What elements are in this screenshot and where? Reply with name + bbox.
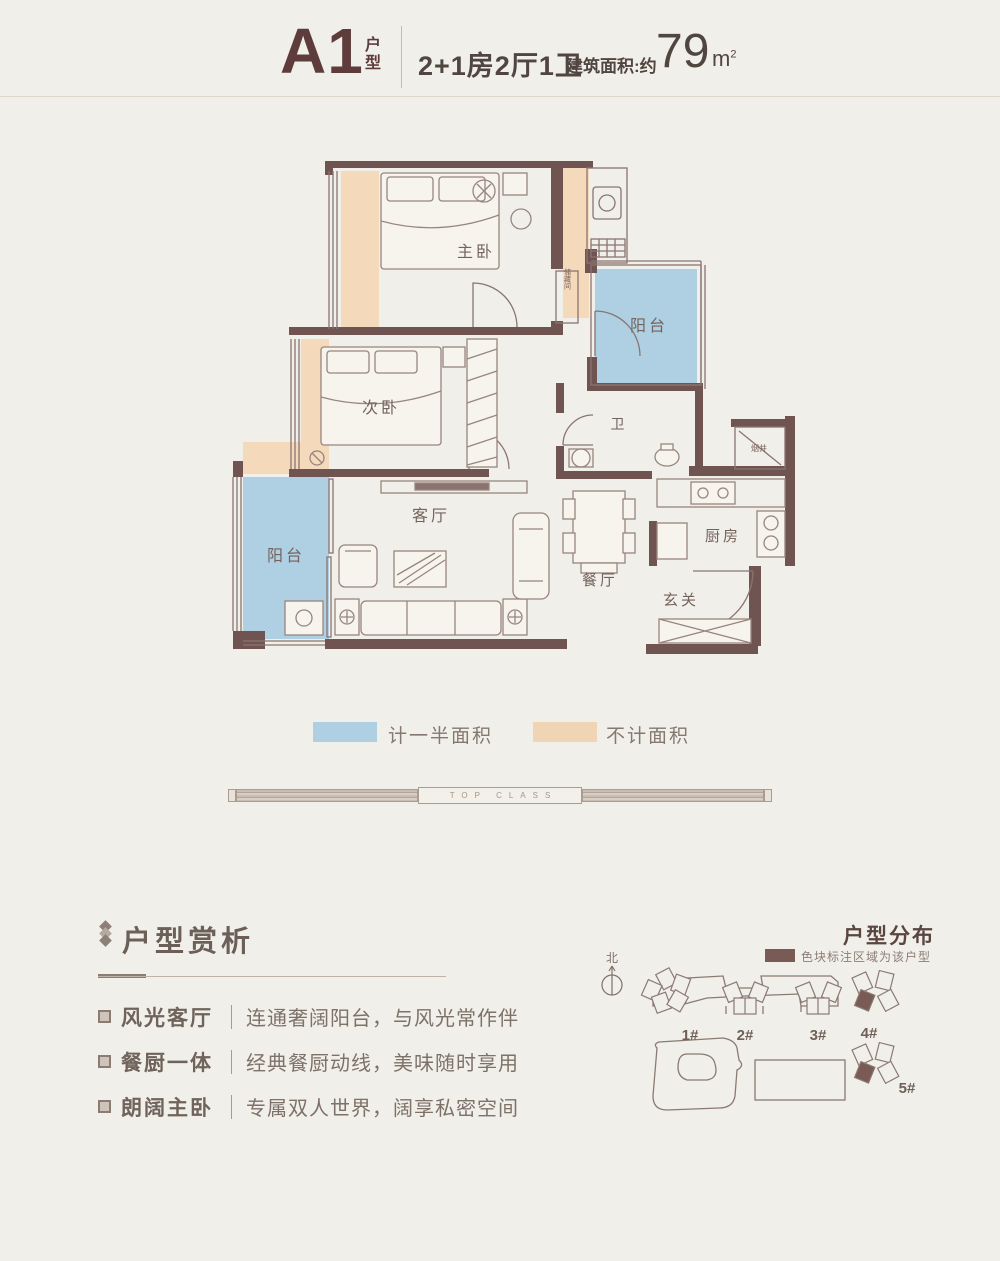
- analysis-rule: [98, 974, 558, 980]
- analysis-separator: [231, 1050, 232, 1074]
- legend-label-half-area: 计一半面积: [388, 721, 493, 748]
- analysis-item: 餐厨一体 经典餐厨动线，美味随时享用: [98, 1039, 558, 1084]
- square-bullet-icon: [98, 1010, 111, 1023]
- label-balcony-upper: 阳台: [630, 317, 668, 335]
- label-foyer: 玄关: [663, 592, 699, 609]
- highlight-unit-4: [855, 990, 875, 1011]
- area-value: 79: [656, 24, 709, 79]
- building-label-1: 1#: [682, 1027, 699, 1044]
- divider-ridged-segment: [236, 789, 418, 802]
- analysis-term: 风光客厅: [121, 1002, 225, 1032]
- analysis-header: 户型赏析: [98, 918, 558, 968]
- legend-label-excluded: 不计面积: [606, 721, 690, 748]
- building-label-5: 5#: [899, 1080, 916, 1097]
- label-master-bedroom: 主卧: [457, 243, 495, 261]
- building-label-2: 2#: [737, 1027, 754, 1044]
- highlight-unit-5: [855, 1062, 875, 1083]
- label-bathroom: 卫: [611, 416, 628, 432]
- unit-code: A1: [280, 14, 364, 88]
- label-kitchen: 厨房: [705, 528, 741, 545]
- square-bullet-icon: [98, 1055, 111, 1068]
- unit-code-suffix: 户型: [362, 36, 380, 72]
- header: A1 户型 2+1房2厅1卫 建筑面积:约 79 m2: [0, 0, 1000, 96]
- analysis-term: 朗阔主卧: [121, 1092, 225, 1122]
- layout-spec: 2+1房2厅1卫: [418, 44, 583, 83]
- area-label: 建筑面积:约: [566, 52, 657, 77]
- label-flue: 烟井: [751, 443, 767, 453]
- divider-center-box: TOP CLASS: [418, 787, 582, 804]
- building-label-4: 4#: [861, 1025, 878, 1042]
- decorative-divider: TOP CLASS: [228, 787, 772, 804]
- analysis-items: 风光客厅 连通奢阔阳台，与风光常作伴 餐厨一体 经典餐厨动线，美味随时享用 朗阔…: [98, 994, 558, 1129]
- header-divider: [401, 26, 402, 88]
- floorplan-drawing: 主卧 次卧 阳台 卫 阳台 客厅 餐厅 厨房 玄关 储藏间 烟井: [229, 161, 799, 666]
- header-rule: [0, 96, 1000, 97]
- diamond-ribbon-icon: [98, 922, 112, 943]
- legend-swatch-half-area: [313, 722, 377, 742]
- analysis-separator: [231, 1005, 232, 1029]
- divider-text: TOP CLASS: [443, 791, 558, 800]
- flyer-page: { "header": { "unit_code": "A1", "unit_c…: [0, 0, 1000, 1261]
- analysis-desc: 连通奢阔阳台，与风光常作伴: [246, 1002, 519, 1031]
- building-label-3: 3#: [810, 1027, 827, 1044]
- label-balcony-lower: 阳台: [267, 547, 305, 565]
- area-unit-exponent: 2: [730, 49, 736, 61]
- north-indicator: 北: [602, 951, 622, 995]
- analysis-item: 风光客厅 连通奢阔阳台，与风光常作伴: [98, 994, 558, 1039]
- label-storage: 储藏间: [564, 268, 572, 291]
- divider-end-cap: [228, 789, 236, 802]
- area-unit-base: m: [712, 46, 730, 71]
- divider-ridged-segment: [582, 789, 764, 802]
- plan-legend: 计一半面积 不计面积: [0, 718, 1000, 748]
- label-living-room: 客厅: [412, 507, 450, 525]
- square-bullet-icon: [98, 1100, 111, 1113]
- analysis-desc: 经典餐厨动线，美味随时享用: [246, 1047, 519, 1076]
- site-shapes: [653, 1038, 845, 1110]
- site-plan: 北: [595, 948, 950, 1120]
- north-label: 北: [606, 951, 618, 965]
- analysis-title: 户型赏析: [122, 918, 254, 960]
- label-second-bedroom: 次卧: [362, 399, 400, 417]
- area-unit: m2: [712, 46, 736, 72]
- divider-end-cap: [764, 789, 772, 802]
- analysis-desc: 专属双人世界，阔享私密空间: [246, 1092, 519, 1121]
- analysis-term: 餐厨一体: [121, 1047, 225, 1077]
- legend-swatch-excluded: [533, 722, 597, 742]
- distribution-title: 户型分布: [843, 920, 935, 950]
- analysis-section: 户型赏析 风光客厅 连通奢阔阳台，与风光常作伴 餐厨一体 经典餐厨动线，美味随时…: [98, 918, 558, 1129]
- analysis-separator: [231, 1095, 232, 1119]
- analysis-item: 朗阔主卧 专属双人世界，阔享私密空间: [98, 1084, 558, 1129]
- label-dining-room: 餐厅: [582, 572, 618, 589]
